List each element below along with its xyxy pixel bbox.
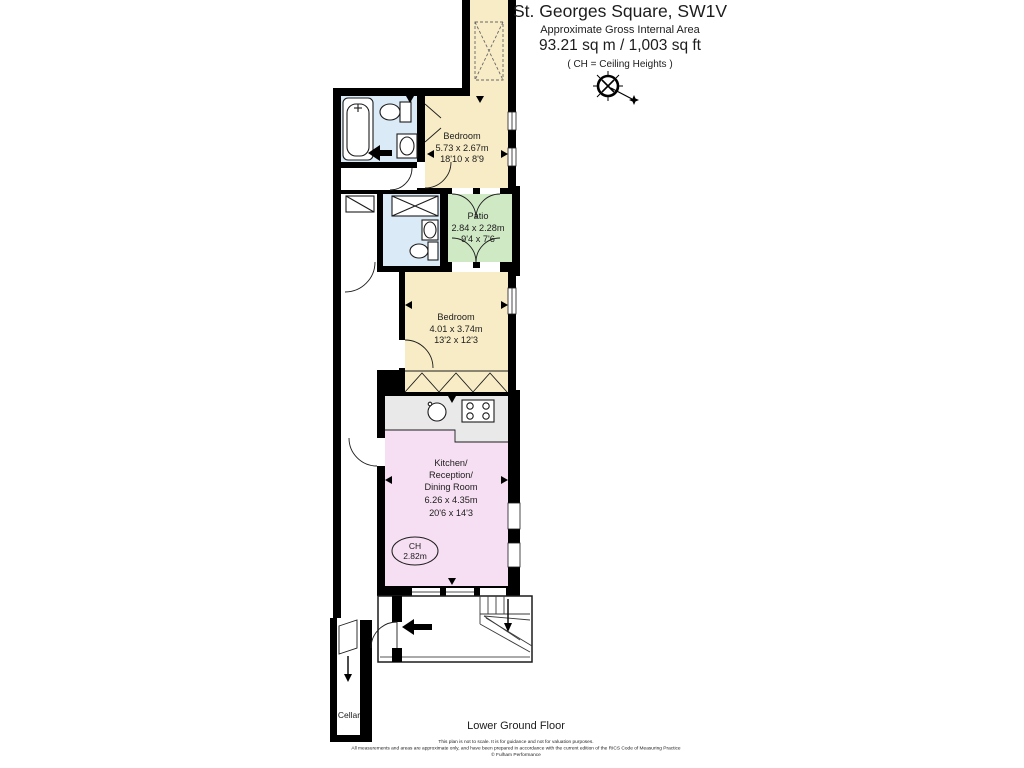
floor-plan-svg: CH 2.82m St. Georges Square, SW1V Approx… — [0, 0, 1024, 768]
kitchen-label-2: Reception/ — [429, 470, 473, 480]
entrance-wall-stub-2 — [392, 648, 402, 662]
sink2-icon — [422, 220, 438, 240]
compass-icon — [593, 71, 639, 105]
kitchen-sink-icon — [428, 402, 446, 421]
hob-icon — [462, 400, 494, 422]
kitchen-label-1: Kitchen/ — [434, 458, 468, 468]
page-subtitle: Approximate Gross Internal Area — [540, 24, 700, 36]
disclaimer-line-3: © Fulham Performance — [491, 751, 541, 758]
cupboard-icon — [346, 196, 374, 212]
side-passage-2 — [341, 272, 399, 370]
disclaimer-line-1: This plan is not to scale. It is for gui… — [438, 739, 593, 745]
bedroom2-size-metric: 4.01 x 3.74m — [429, 324, 482, 334]
ch-note: ( CH = Ceiling Heights ) — [567, 59, 672, 70]
patio-label: Patio — [468, 211, 489, 221]
bedroom2-label: Bedroom — [437, 312, 475, 322]
kitchen-size-imperial: 20'6 x 14'3 — [429, 508, 473, 518]
bathtub-icon — [343, 98, 373, 160]
bedroom1-size-metric: 5.73 x 2.67m — [435, 143, 488, 153]
bedroom2-size-imperial: 13'2 x 12'3 — [434, 335, 478, 345]
kitchen-size-metric: 6.26 x 4.35m — [424, 495, 477, 505]
page-title: St. Georges Square, SW1V — [513, 1, 727, 21]
shower-icon — [392, 196, 438, 216]
ch-badge-label: CH — [409, 541, 421, 551]
hallway — [341, 168, 417, 190]
toilet2-icon — [410, 242, 438, 260]
corridor-room — [470, 0, 508, 98]
bedroom1-label: Bedroom — [443, 131, 481, 141]
side-passage-3 — [341, 368, 377, 620]
entrance-wall-stub — [392, 596, 402, 622]
bedroom1-room — [425, 96, 508, 188]
sink-icon — [397, 134, 417, 158]
cellar-hatch — [339, 620, 357, 654]
floor-label: Lower Ground Floor — [467, 720, 565, 732]
patio-size-imperial: 9'4 x 7'6 — [461, 234, 495, 244]
bedroom1-size-imperial: 18'10 x 8'9 — [440, 154, 484, 164]
disclaimer-line-2: All measurements and areas are approxima… — [351, 746, 681, 752]
north-star-icon — [629, 95, 639, 105]
ch-badge-value: 2.82m — [403, 551, 427, 561]
kitchen-label-3: Dining Room — [424, 482, 477, 492]
area-text: 93.21 sq m / 1,003 sq ft — [539, 37, 702, 54]
cellar-label: Cellar — [338, 710, 360, 720]
toilet-icon — [380, 102, 411, 122]
patio-size-metric: 2.84 x 2.28m — [451, 223, 504, 233]
floorplan-page: CH 2.82m St. Georges Square, SW1V Approx… — [0, 0, 1024, 768]
kitchen-counter-step — [455, 428, 508, 442]
